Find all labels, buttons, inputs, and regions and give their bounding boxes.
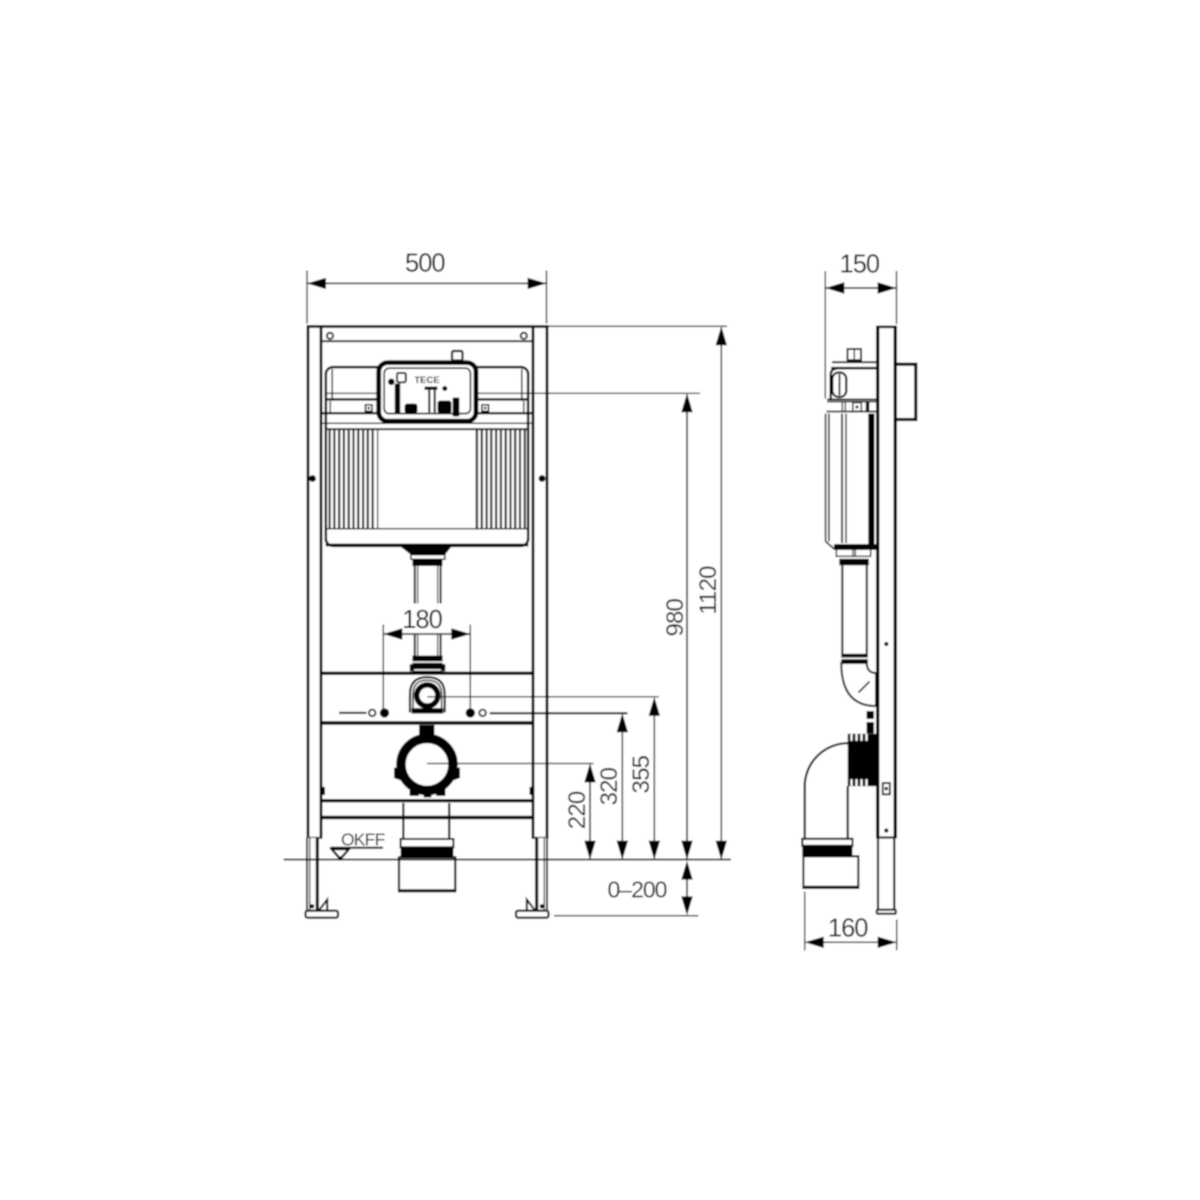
svg-text:OKFF: OKFF	[341, 830, 385, 850]
svg-text:TECE: TECE	[414, 375, 439, 386]
svg-text:150: 150	[840, 251, 880, 279]
svg-text:500: 500	[405, 250, 445, 278]
svg-text:180: 180	[402, 606, 442, 634]
svg-text:220: 220	[564, 791, 591, 829]
svg-text:1120: 1120	[695, 566, 722, 615]
svg-text:980: 980	[662, 598, 689, 636]
svg-text:0–200: 0–200	[608, 877, 667, 903]
svg-text:160: 160	[828, 915, 868, 943]
svg-text:320: 320	[596, 767, 623, 805]
svg-text:355: 355	[628, 755, 655, 793]
